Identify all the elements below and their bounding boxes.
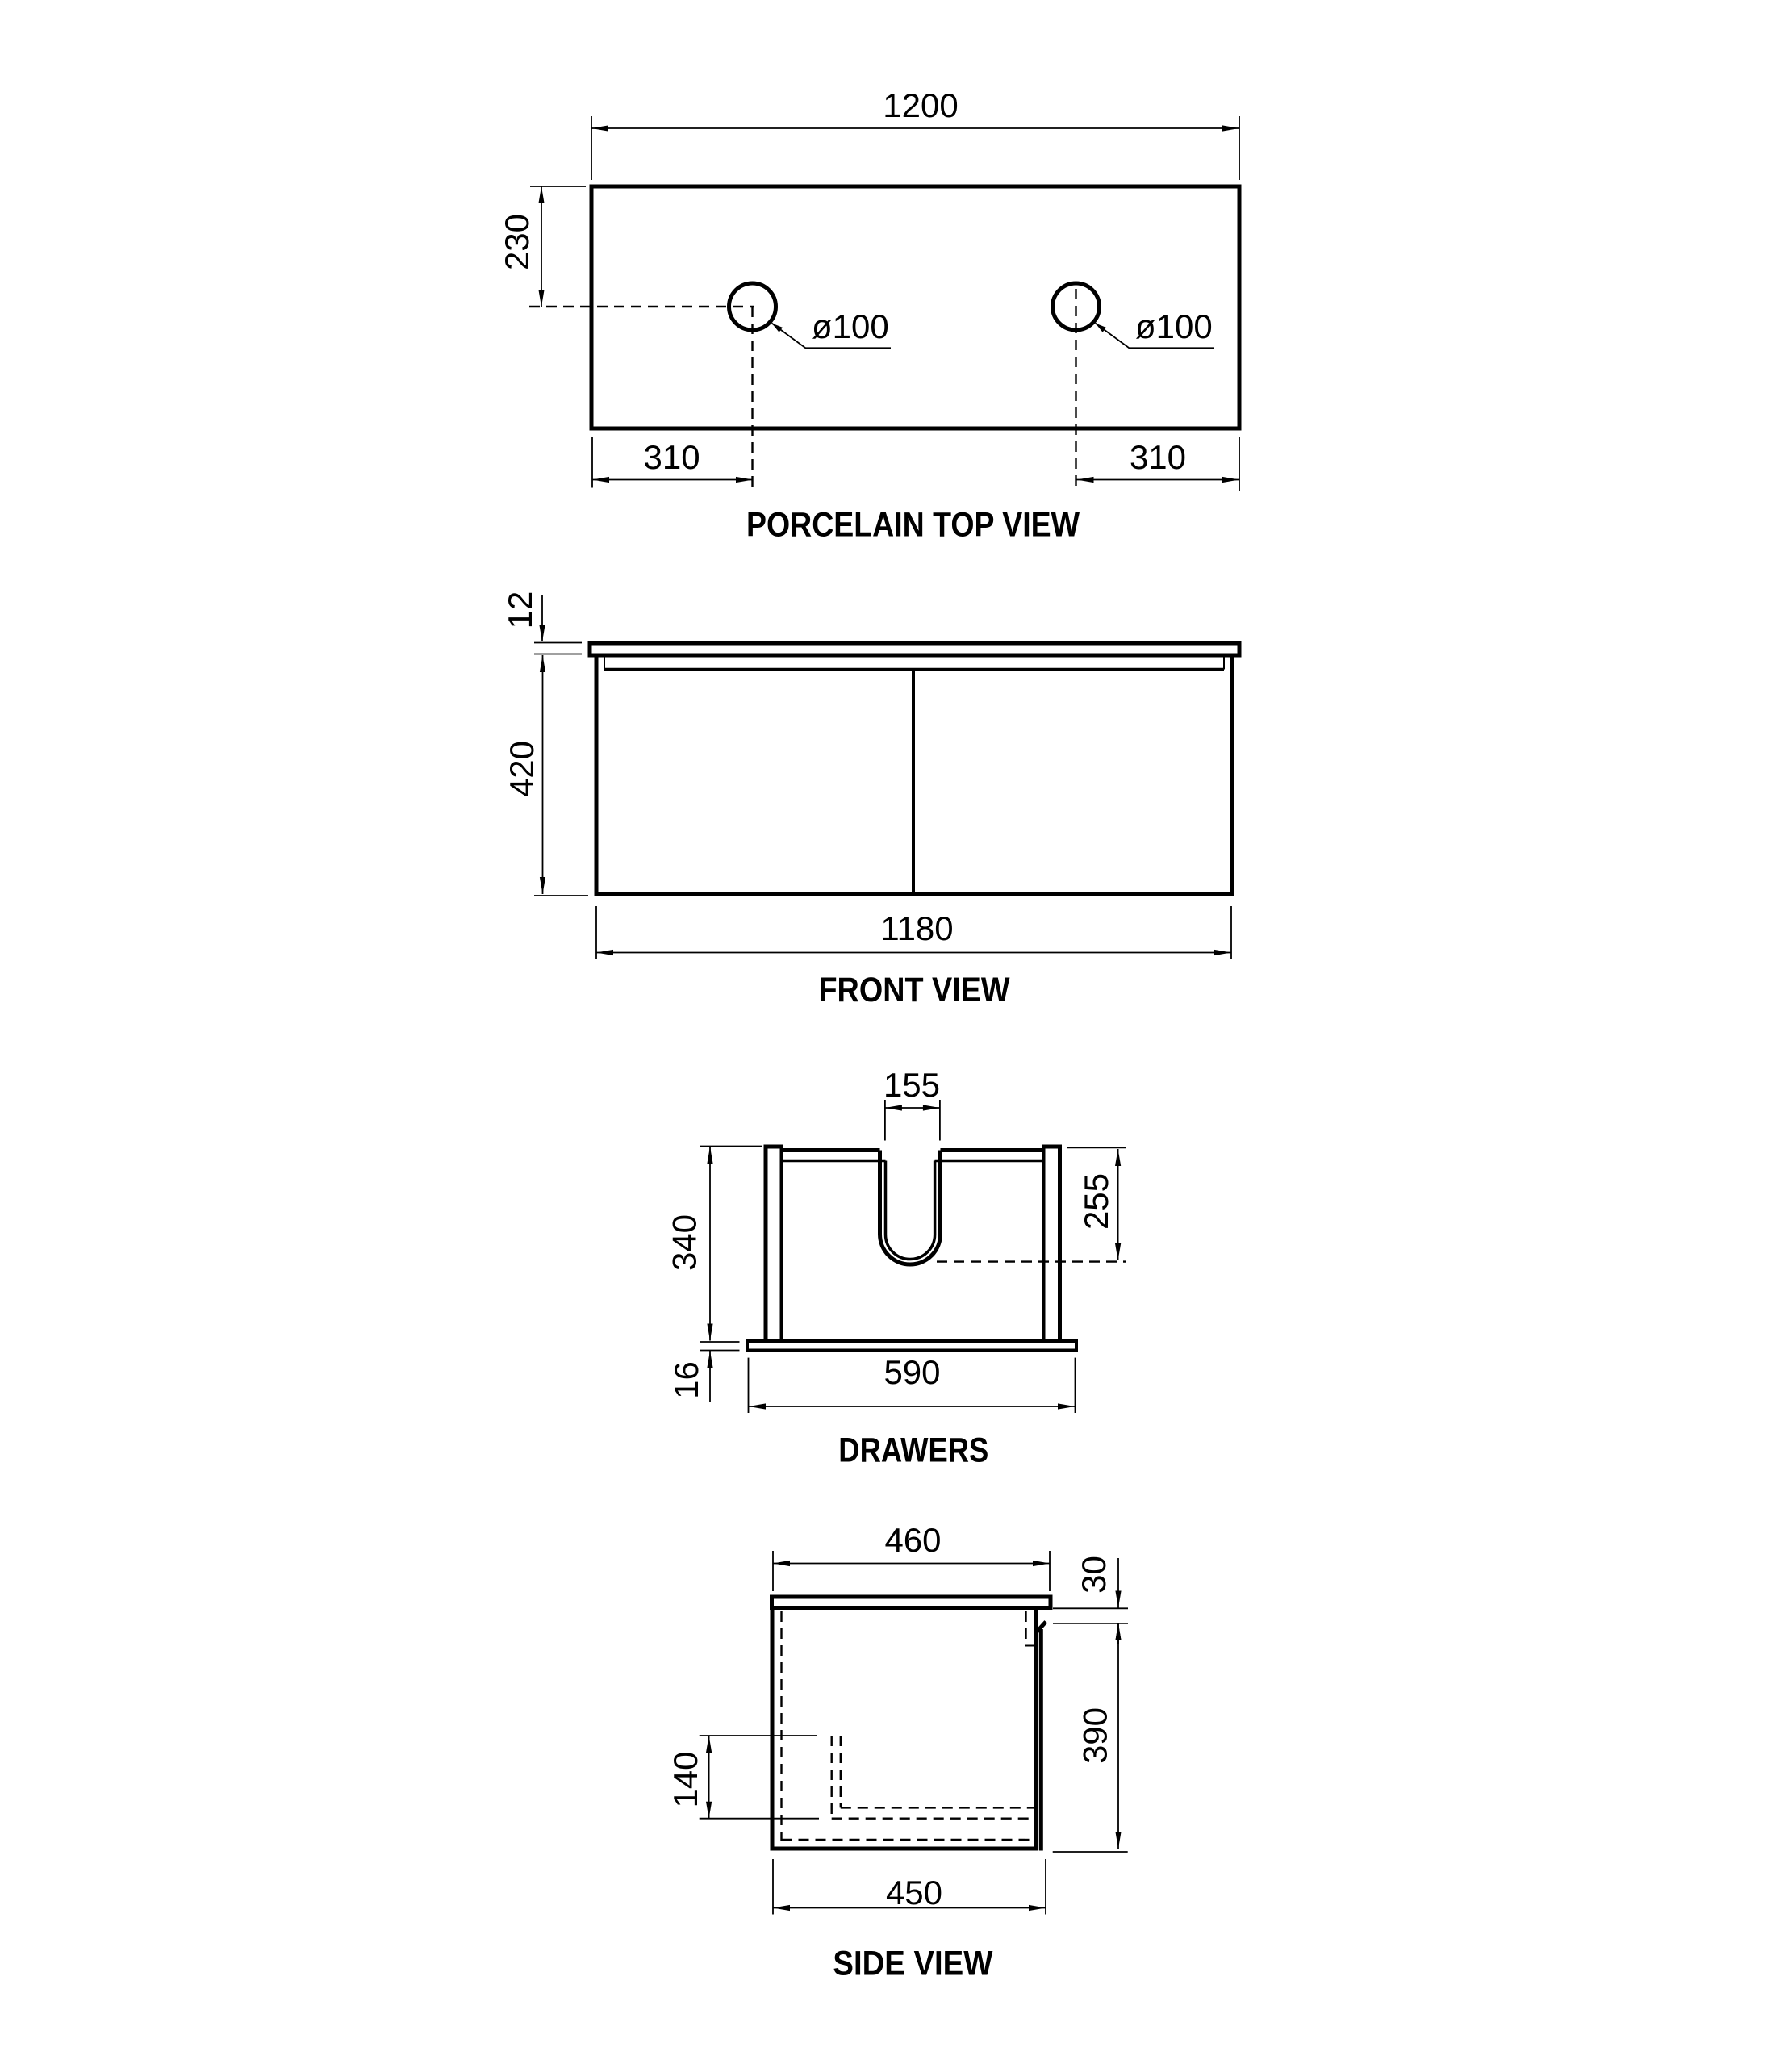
svg-text:390: 390: [1076, 1707, 1114, 1764]
svg-text:1180: 1180: [880, 909, 953, 947]
svg-text:155: 155: [883, 1066, 940, 1104]
svg-text:ø100: ø100: [1135, 307, 1213, 345]
svg-text:DRAWERS: DRAWERS: [838, 1431, 988, 1470]
svg-text:140: 140: [666, 1751, 704, 1807]
svg-text:230: 230: [498, 214, 536, 270]
svg-text:ø100: ø100: [812, 307, 889, 345]
svg-text:255: 255: [1077, 1173, 1115, 1230]
svg-text:PORCELAIN TOP VIEW: PORCELAIN TOP VIEW: [746, 506, 1080, 545]
svg-text:310: 310: [1130, 438, 1186, 476]
svg-text:310: 310: [644, 438, 700, 476]
svg-text:FRONT VIEW: FRONT VIEW: [819, 971, 1010, 1009]
svg-text:SIDE VIEW: SIDE VIEW: [833, 1945, 992, 1983]
svg-text:590: 590: [883, 1353, 940, 1391]
svg-text:420: 420: [503, 741, 541, 797]
svg-text:30: 30: [1075, 1556, 1113, 1594]
svg-text:16: 16: [667, 1361, 705, 1399]
svg-text:12: 12: [501, 591, 539, 629]
svg-text:460: 460: [884, 1521, 941, 1559]
svg-text:450: 450: [886, 1874, 942, 1912]
svg-text:1200: 1200: [883, 86, 958, 124]
svg-text:340: 340: [666, 1214, 704, 1271]
